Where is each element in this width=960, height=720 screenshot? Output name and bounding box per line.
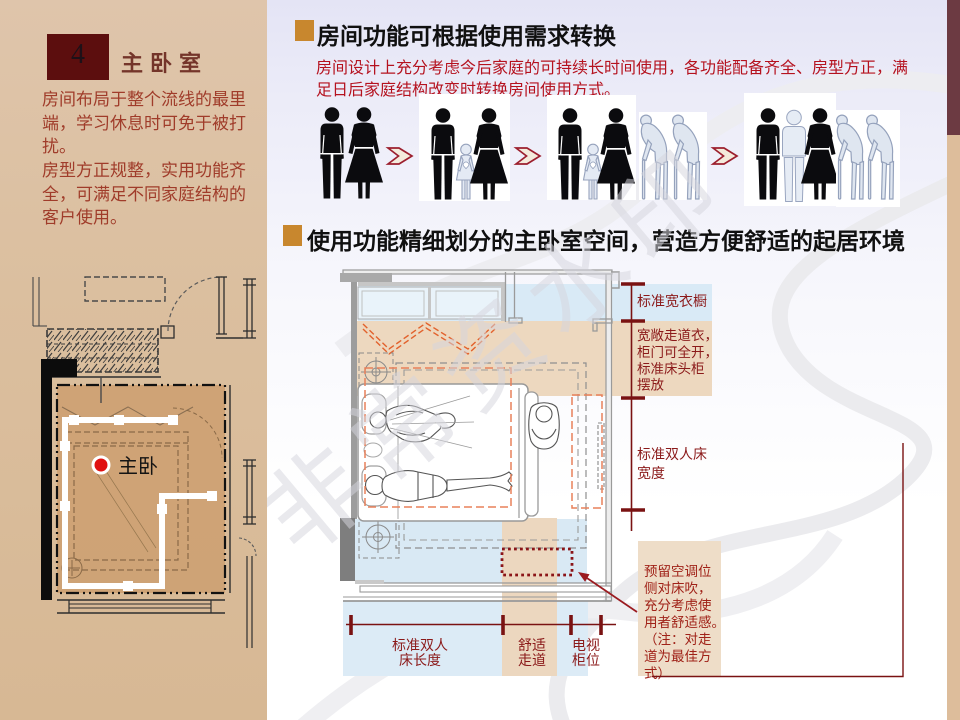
- svg-text:摆放: 摆放: [637, 378, 665, 393]
- svg-text:柜位: 柜位: [572, 652, 600, 668]
- svg-text:电视: 电视: [572, 637, 600, 653]
- svg-text:标准宽衣橱: 标准宽衣橱: [637, 293, 707, 309]
- svg-text:床长度: 床长度: [399, 652, 441, 668]
- svg-text:主卧: 主卧: [118, 455, 158, 478]
- svg-text:标准床头柜: 标准床头柜: [637, 362, 705, 377]
- svg-text:宽敞走道衣，: 宽敞走道衣，: [637, 327, 718, 343]
- svg-text:走道: 走道: [518, 652, 546, 668]
- svg-text:标准双人: 标准双人: [392, 637, 448, 653]
- svg-text:柜门可全开，: 柜门可全开，: [637, 344, 718, 360]
- svg-text:舒适: 舒适: [518, 637, 546, 653]
